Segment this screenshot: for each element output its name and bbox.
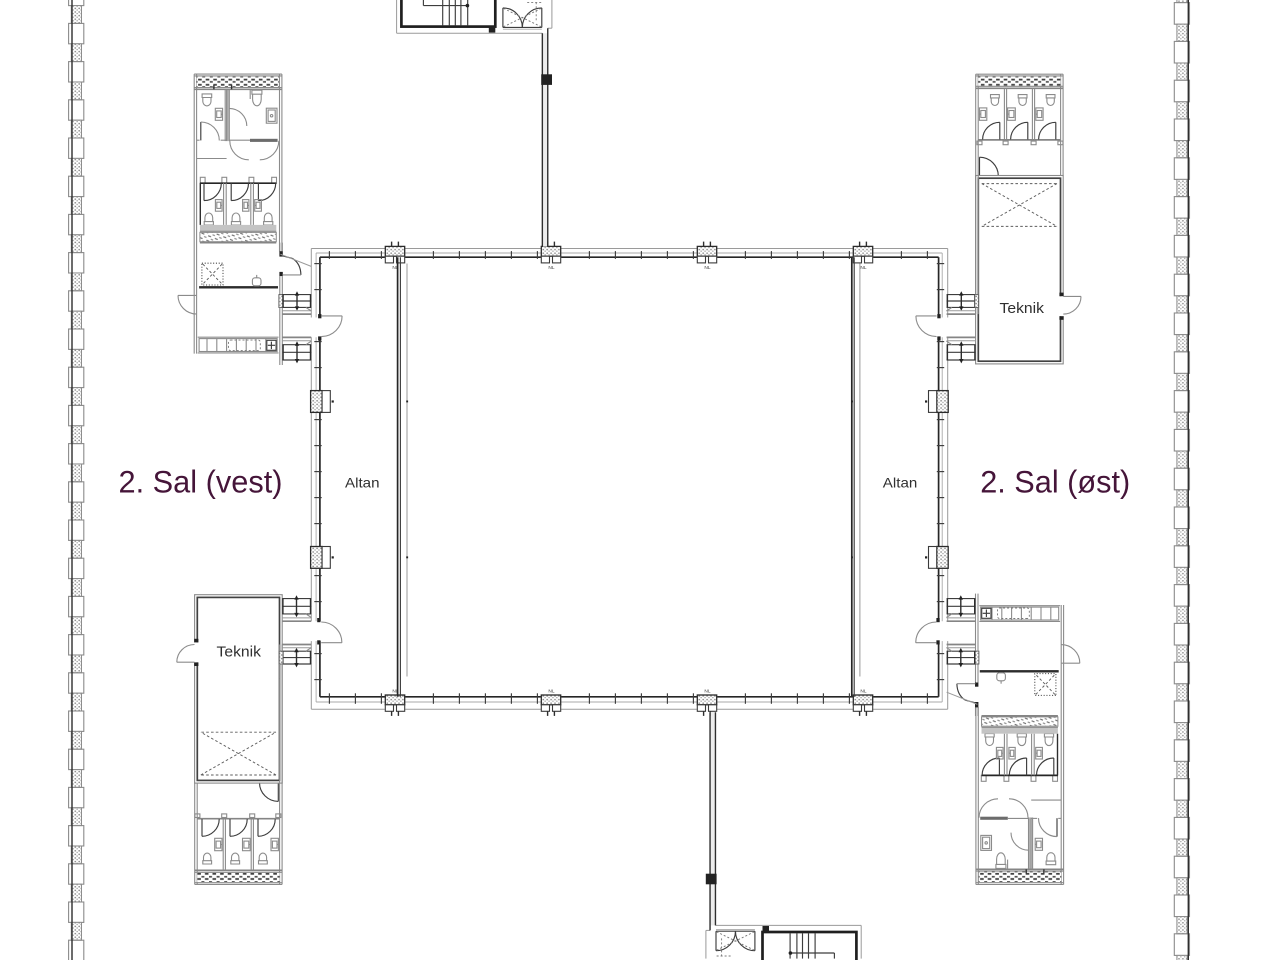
svg-text:Teknik: Teknik (217, 645, 262, 661)
svg-text:Altan: Altan (345, 475, 380, 490)
svg-text:Altan: Altan (883, 475, 918, 490)
svg-text:NL: NL (860, 265, 866, 271)
svg-text:Teknik: Teknik (1000, 301, 1045, 317)
svg-text:2. Sal (vest): 2. Sal (vest) (119, 464, 283, 500)
svg-text:2. Sal (øst): 2. Sal (øst) (980, 464, 1130, 500)
svg-text:NL: NL (704, 689, 710, 695)
svg-text:NL: NL (860, 689, 866, 695)
svg-text:NL: NL (548, 689, 554, 695)
svg-text:NL: NL (704, 265, 710, 271)
svg-text:NL: NL (548, 265, 554, 271)
